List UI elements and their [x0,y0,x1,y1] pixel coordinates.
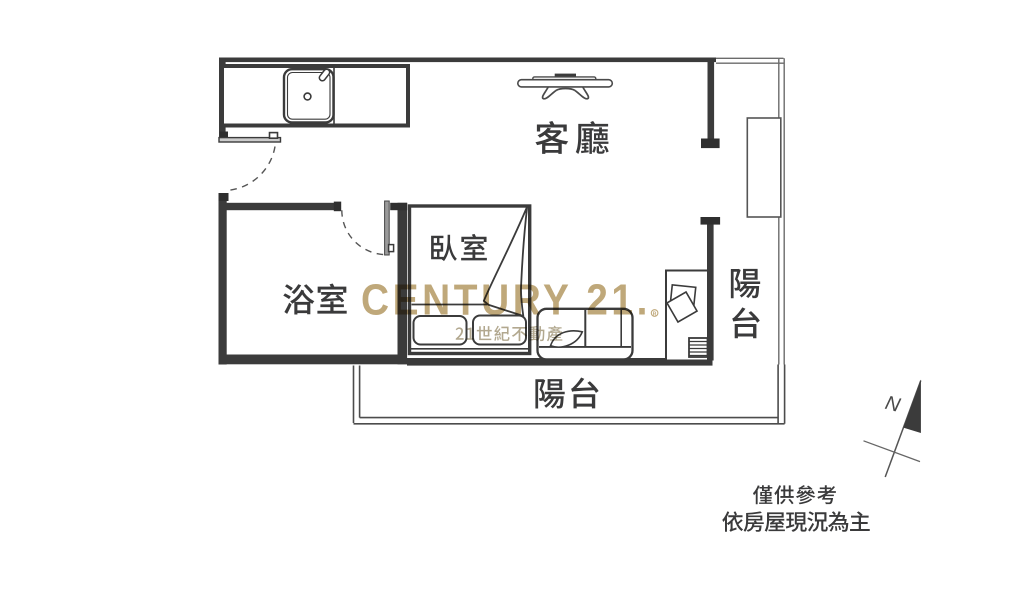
svg-text:CENTURY 21.: CENTURY 21. [361,276,651,324]
svg-text:R: R [653,311,657,317]
